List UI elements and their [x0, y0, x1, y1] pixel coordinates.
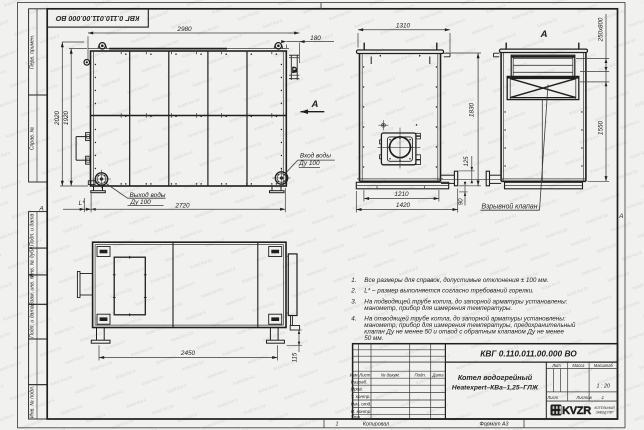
svg-text:115: 115	[292, 352, 298, 362]
svg-text:Вход воды: Вход воды	[300, 151, 331, 159]
svg-text:Т. контр.: Т. контр.	[351, 394, 371, 399]
svg-text:Лист: Лист	[546, 395, 558, 400]
svg-text:1210: 1210	[394, 191, 409, 198]
svg-text:180: 180	[310, 35, 321, 42]
svg-text:KVZR: KVZR	[562, 405, 591, 417]
svg-text:1: 1	[336, 421, 339, 427]
svg-text:Разраб.: Разраб.	[351, 380, 368, 385]
svg-text:1550: 1550	[597, 120, 604, 135]
svg-text:3.: 3.	[351, 298, 356, 305]
svg-text:Дата: Дата	[431, 373, 444, 378]
svg-text:Лит.: Лит.	[551, 363, 562, 368]
svg-text:А: А	[618, 213, 623, 220]
svg-text:Утв.: Утв.	[351, 414, 361, 419]
svg-text:Копировал: Копировал	[363, 421, 389, 427]
svg-text:250x800: 250x800	[597, 17, 604, 42]
svg-text:50 мм.: 50 мм.	[364, 335, 383, 342]
svg-text:2.: 2.	[350, 288, 356, 295]
svg-text:Листов: Листов	[575, 395, 592, 400]
svg-text:А: А	[540, 29, 548, 40]
svg-text:1420: 1420	[396, 202, 411, 209]
svg-text:1: 1	[602, 395, 604, 400]
svg-text:№ докум.: № докум.	[381, 373, 400, 378]
svg-text:Пров.: Пров.	[351, 387, 363, 392]
svg-text:1310: 1310	[396, 22, 411, 29]
svg-text:Н. контр.: Н. контр.	[351, 409, 372, 414]
svg-text:Взрывной клапан: Взрывной клапан	[482, 202, 538, 210]
svg-text:Ду 100: Ду 100	[130, 199, 152, 206]
svg-text:Масса: Масса	[572, 363, 585, 368]
svg-text:Выход воды: Выход воды	[130, 191, 166, 199]
svg-text:Инв. № подл.: Инв. № подл.	[30, 386, 36, 418]
svg-text:1920: 1920	[63, 110, 70, 125]
svg-text:КВГ 0.110.011.00.000 ВО: КВГ 0.110.011.00.000 ВО	[480, 349, 577, 359]
svg-text:1.: 1.	[351, 277, 356, 284]
svg-text:КОТЕЛЬНЫЙ: КОТЕЛЬНЫЙ	[594, 406, 615, 410]
svg-text:А: А	[310, 99, 318, 110]
svg-text:клапан Ду не менее 50 и отвод: клапан Ду не менее 50 и отвод с обратным…	[364, 328, 564, 336]
svg-text:2020: 2020	[54, 110, 61, 126]
svg-text:2720: 2720	[174, 202, 190, 209]
svg-text:4.: 4.	[351, 316, 356, 323]
svg-text:1 : 20: 1 : 20	[597, 384, 611, 390]
svg-text:Формат А3: Формат А3	[480, 421, 509, 427]
svg-text:Heatexpert–КВа–1,25–ГЛЖ: Heatexpert–КВа–1,25–ГЛЖ	[452, 384, 539, 391]
svg-text:КВГ 0.110.011.00.000 ВО: КВГ 0.110.011.00.000 ВО	[56, 14, 140, 23]
svg-text:Ду 100: Ду 100	[298, 160, 320, 167]
svg-text:Изм.: Изм.	[350, 373, 359, 378]
svg-text:Инв. № дубл.: Инв. № дубл.	[30, 246, 36, 278]
svg-text:90: 90	[459, 198, 465, 205]
svg-text:ЗАВОД РЗР: ЗАВОД РЗР	[596, 411, 615, 415]
svg-text:Подп.: Подп.	[414, 373, 425, 378]
svg-text:1830: 1830	[469, 102, 476, 117]
svg-text:125: 125	[464, 156, 470, 167]
svg-text:Справ. №: Справ. №	[30, 126, 36, 150]
svg-text:Подп. и дата: Подп. и дата	[30, 305, 36, 338]
svg-text:Нач. отд.: Нач. отд.	[351, 402, 372, 407]
svg-text:2450: 2450	[180, 350, 196, 357]
svg-text:Котел водогрейный: Котел водогрейный	[458, 373, 533, 382]
svg-text:L* – размер выполняется соглас: L* – размер выполняется согласно требова…	[364, 287, 534, 295]
svg-text:Лист: Лист	[358, 373, 370, 378]
svg-text:Перв. примен.: Перв. примен.	[30, 35, 36, 69]
svg-text:Все размеры для справок, допус: Все размеры для справок, допустимые откл…	[364, 276, 548, 284]
svg-text:Подп. и дата: Подп. и дата	[30, 214, 36, 247]
svg-text:манометр, прибор для измерения: манометр, прибор для измерения температу…	[364, 304, 512, 312]
svg-text:2980: 2980	[176, 26, 192, 33]
svg-text:Масштаб: Масштаб	[594, 363, 614, 368]
svg-text:Взам. инв. №: Взам. инв. №	[30, 273, 36, 305]
